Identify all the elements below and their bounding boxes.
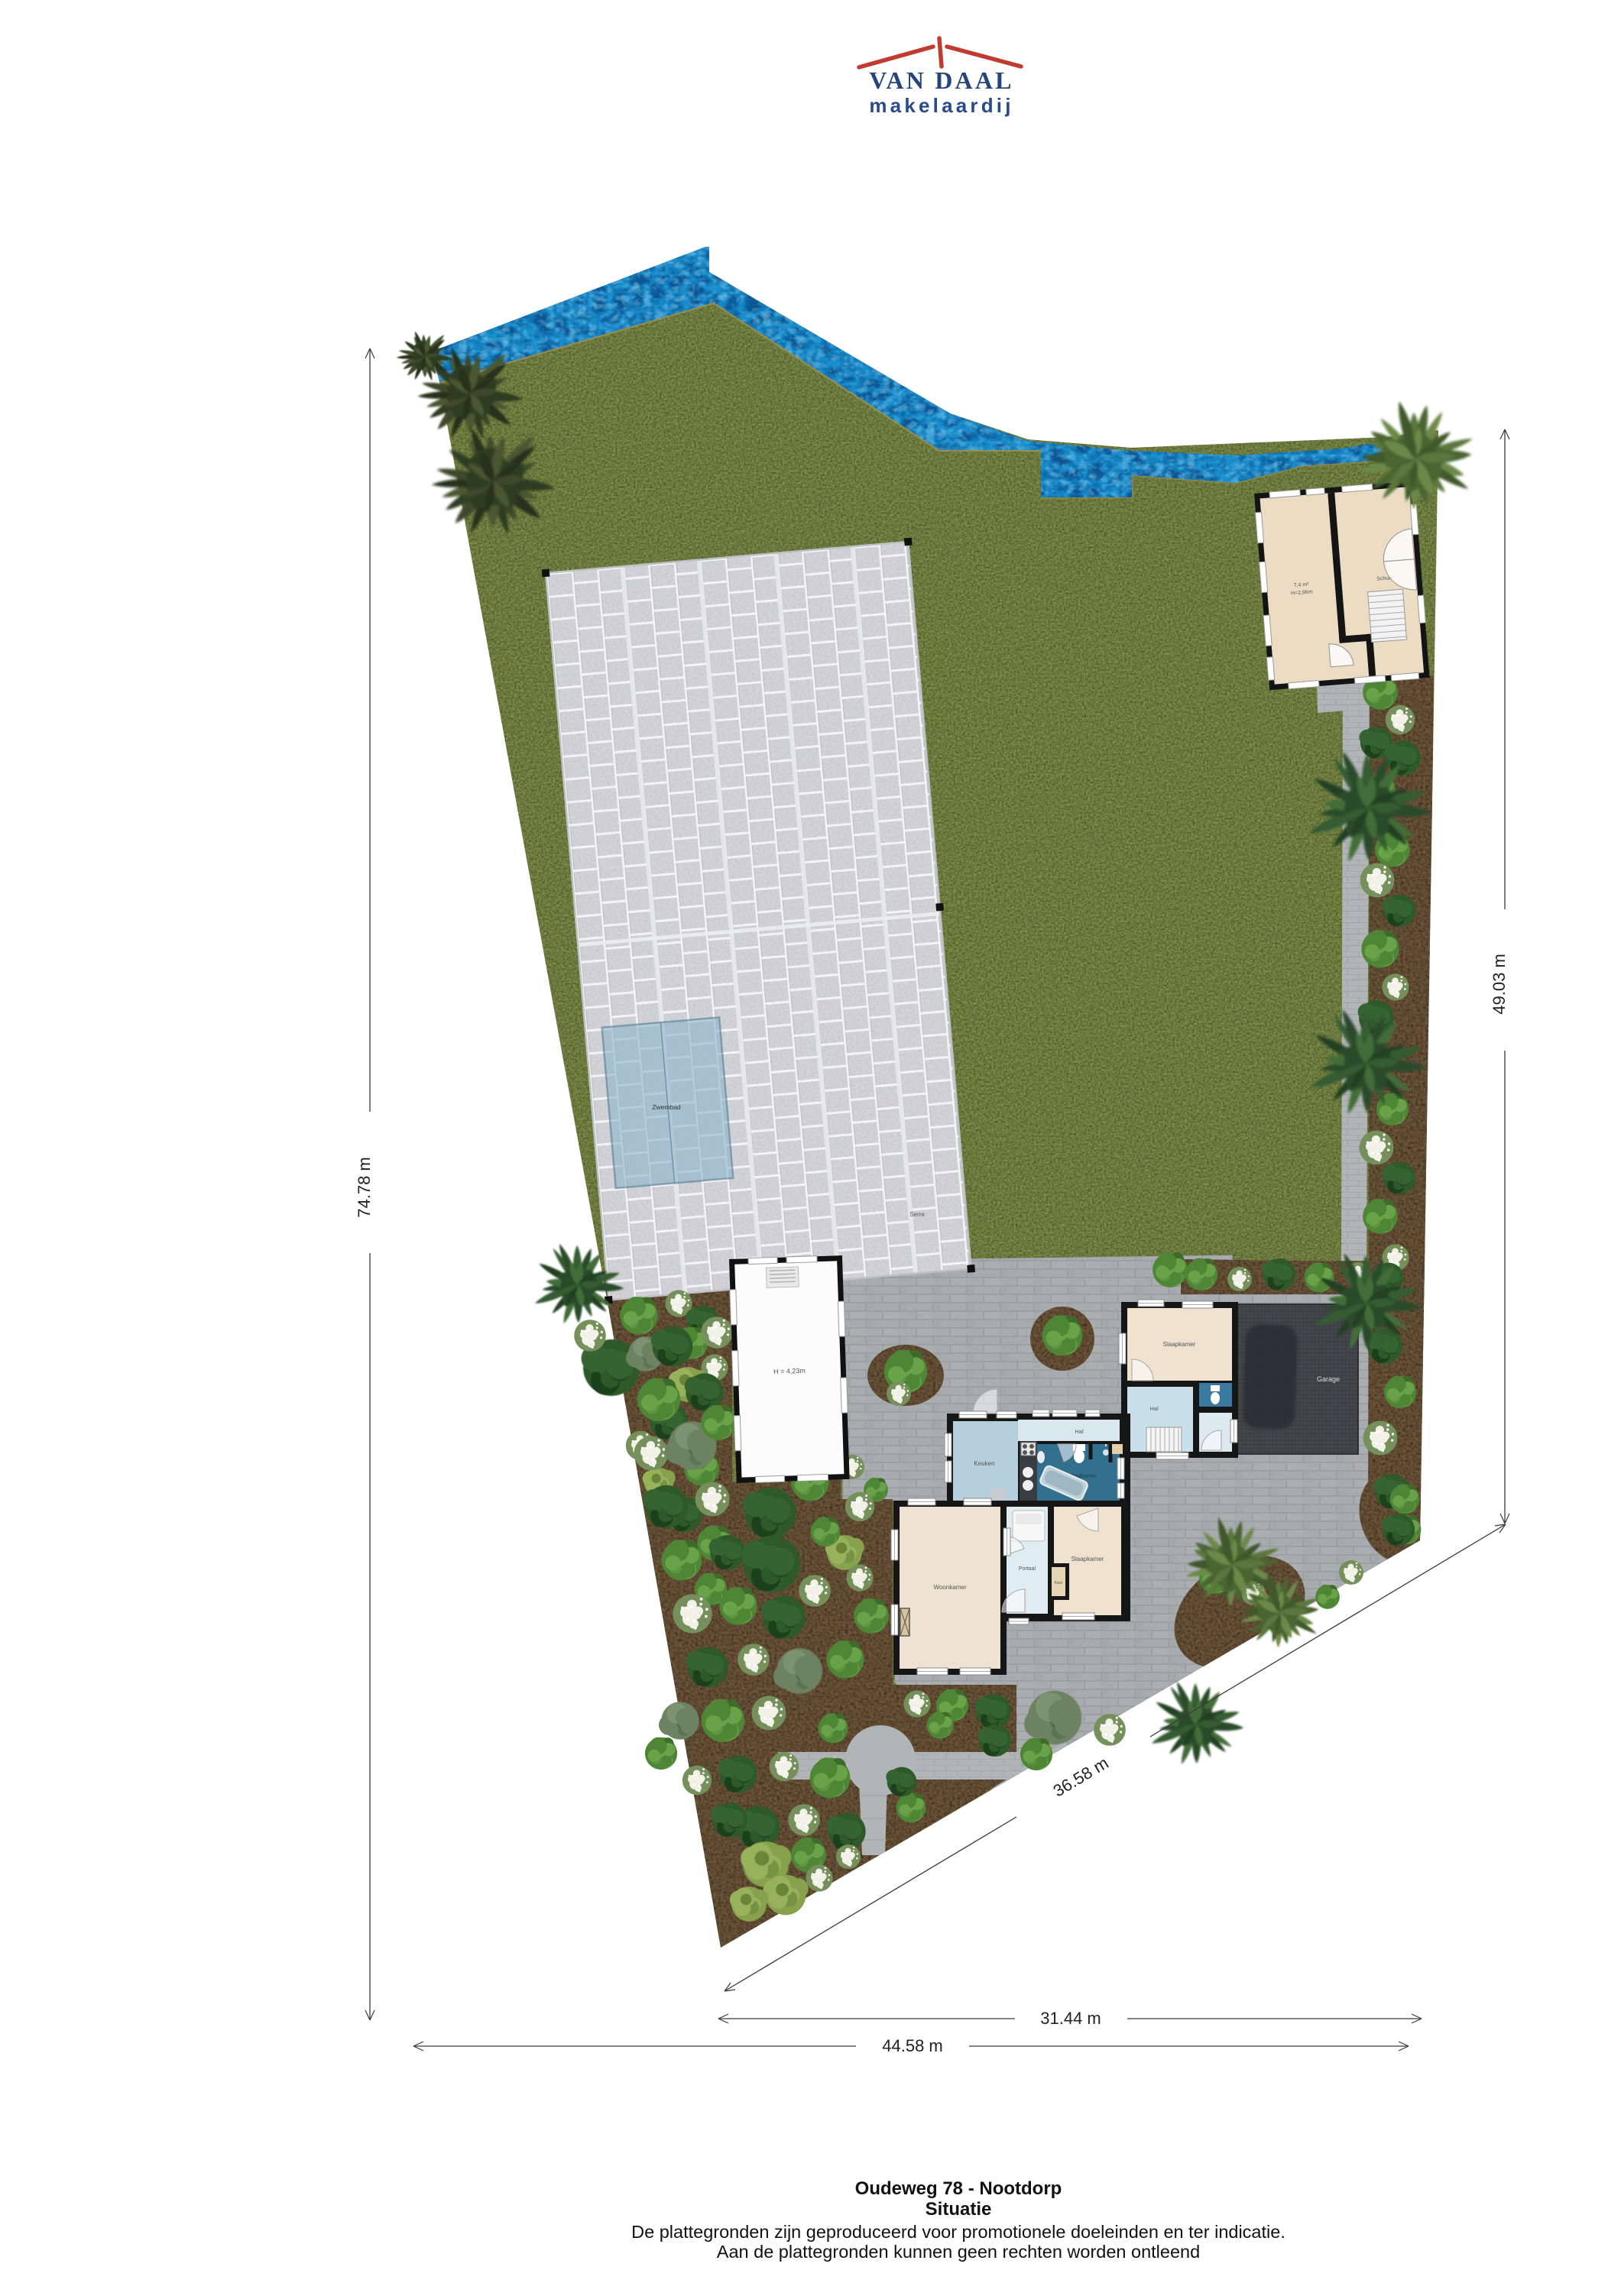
svg-text:49.03 m: 49.03 m: [1490, 954, 1509, 1015]
svg-text:VAN DAAL: VAN DAAL: [869, 66, 1013, 94]
svg-text:Slaapkamer: Slaapkamer: [1071, 1556, 1104, 1563]
svg-text:Situatie: Situatie: [926, 2199, 992, 2220]
svg-text:74.78 m: 74.78 m: [355, 1157, 374, 1218]
svg-text:Hal: Hal: [1149, 1405, 1159, 1412]
svg-text:Hal: Hal: [1075, 1428, 1084, 1435]
svg-text:H = 4,23m: H = 4,23m: [773, 1367, 806, 1375]
svg-text:Zwembad: Zwembad: [652, 1103, 681, 1111]
svg-text:Woonkamer: Woonkamer: [934, 1584, 967, 1591]
svg-text:Slaapkamer: Slaapkamer: [1163, 1341, 1196, 1348]
svg-text:Kast: Kast: [1055, 1581, 1063, 1585]
svg-text:makelaardij: makelaardij: [869, 94, 1013, 117]
svg-text:Serre: Serre: [909, 1211, 925, 1218]
svg-text:De plattegronden zijn geproduc: De plattegronden zijn geproduceerd voor …: [631, 2222, 1285, 2242]
svg-text:Portaal: Portaal: [1019, 1566, 1036, 1572]
svg-text:31.44 m: 31.44 m: [1040, 2009, 1101, 2028]
svg-text:Garage: Garage: [1317, 1375, 1340, 1383]
svg-text:44.58 m: 44.58 m: [882, 2036, 943, 2055]
svg-text:Keuken: Keuken: [974, 1460, 994, 1467]
svg-text:Oudeweg 78 - Nootdorp: Oudeweg 78 - Nootdorp: [855, 2178, 1062, 2199]
svg-text:Aan de plattegronden kunnen ge: Aan de plattegronden kunnen geen rechten…: [717, 2242, 1200, 2262]
